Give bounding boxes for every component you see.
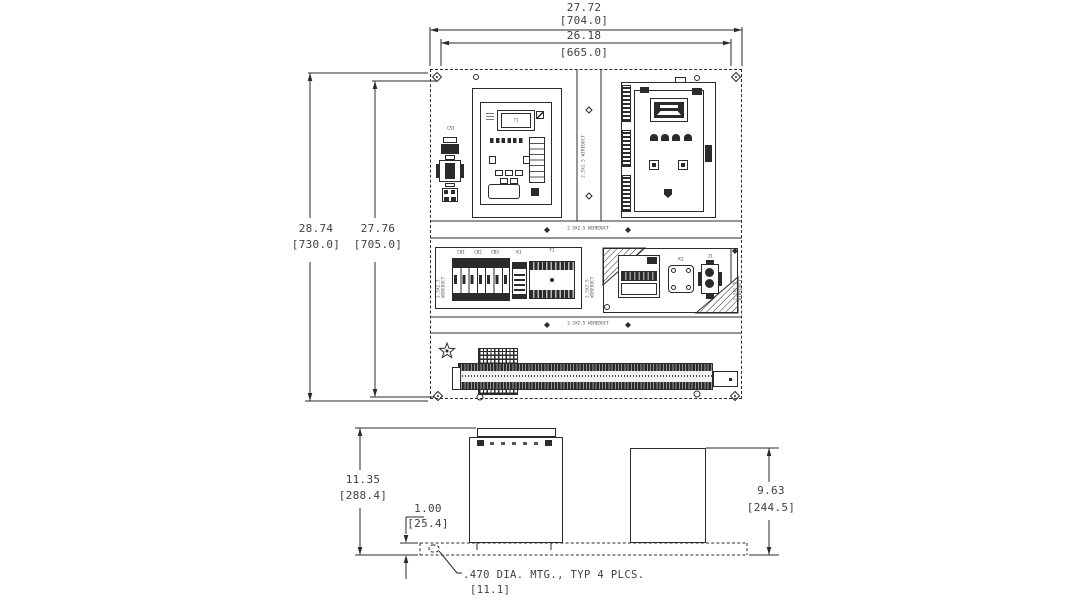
controller-key-icon <box>684 134 692 141</box>
mounting-note: .470 DIA. MTG., TYP 4 PLCS. <box>463 569 644 581</box>
relay-k2-pin <box>671 268 676 273</box>
relay-port-square <box>531 188 539 196</box>
terminal-rail-markers <box>459 375 712 377</box>
relay-led-column <box>529 137 545 183</box>
receptacle-wing-left <box>698 272 701 286</box>
wireduct-label-vertical: 2.5X2.5 WIREDUCT <box>733 266 743 301</box>
control-switch-dot <box>451 190 455 194</box>
receptacle-tab-bottom <box>706 294 714 299</box>
dim-overall-width-mm: [704.0] <box>560 14 608 27</box>
label-cb1: CB1 <box>457 250 465 255</box>
dim-mount-height-mm: [705.0] <box>354 238 402 251</box>
label-cb3: CB3 <box>491 250 499 255</box>
relay-text-block <box>486 111 494 120</box>
label-k2: K2 <box>678 257 683 262</box>
sideview-relay-body <box>469 437 563 543</box>
controller-terminal-strip <box>622 130 631 167</box>
controller-display-bar <box>657 111 681 115</box>
dim-overall-width-in: 27.72 <box>567 1 602 14</box>
control-switch-wing-left <box>436 164 440 178</box>
sideview-relay-lip <box>477 428 556 437</box>
relay-k2-pin <box>671 285 676 290</box>
controller-key-icon <box>672 134 680 141</box>
label-cs1: CS1 <box>447 126 455 131</box>
fuse-block-comb-top <box>530 262 574 270</box>
io-module-badge <box>647 257 657 264</box>
mounting-note-mm: [11.1] <box>470 584 510 596</box>
wireduct-label-vertical: 2.5X2.5 WIREDUCT <box>585 260 595 298</box>
dim-depth-right-mm: [244.5] <box>747 501 795 514</box>
receptacle-contact <box>705 268 714 277</box>
dim-base-mm: [25.4] <box>407 517 449 530</box>
wireduct-label-vertical: 2.5X2.5 WIREDUCT <box>581 134 586 177</box>
relay-k1-dots <box>514 271 525 291</box>
dim-depth-left-in: 11.35 <box>346 473 381 486</box>
dim-mount-height-in: 27.76 <box>361 222 396 235</box>
relay-button-row <box>490 138 524 143</box>
drawing-canvas: 71 <box>0 0 1080 600</box>
relay-k2-pin <box>686 268 691 273</box>
controller-terminal-strip <box>622 85 631 122</box>
receptacle-wing-right <box>719 272 722 286</box>
controller-button-left-dot <box>652 163 656 167</box>
receptacle-contact <box>705 279 714 288</box>
controller-button-right-dot <box>681 163 685 167</box>
io-module-lower <box>621 283 657 295</box>
control-switch-neck2 <box>445 183 455 187</box>
control-switch-dot <box>444 190 448 194</box>
dim-depth-right-in: 9.63 <box>757 484 785 497</box>
breaker-handles <box>454 275 508 284</box>
sideview-plate-dashes <box>490 442 542 445</box>
dim-base-in: 1.00 <box>414 502 442 515</box>
fuse-block-dot <box>550 278 554 282</box>
relay-k2-pin <box>686 285 691 290</box>
terminal-rail-cap <box>452 367 461 390</box>
relay-button-left <box>489 156 496 164</box>
terminal-rail-end-dot <box>729 378 732 381</box>
label-k1: K1 <box>516 250 521 255</box>
dim-depth-left-mm: [288.4] <box>339 489 387 502</box>
sideview-screw <box>477 440 484 446</box>
control-switch-cap <box>441 144 459 154</box>
control-switch-wing-right <box>460 164 464 178</box>
wireduct-label-top: 2.5X2.5 WIREDUCT <box>567 226 609 231</box>
dim-overall-height-mm: [730.0] <box>292 238 340 251</box>
controller-display-bar <box>660 105 678 108</box>
control-switch-foot <box>451 197 456 201</box>
controller-terminal-strip <box>622 175 631 212</box>
terminal-rail-end <box>713 371 738 387</box>
controller-key-icon <box>661 134 669 141</box>
control-switch-top <box>443 137 457 143</box>
dim-mount-width-mm: [665.0] <box>560 46 608 59</box>
label-cb2: CB2 <box>474 250 482 255</box>
wireduct-label-bottom: 2.5X2.5 WIREDUCT <box>567 321 609 326</box>
dim-mount-width-in: 26.18 <box>567 29 602 42</box>
fuse-block-comb-bottom <box>530 290 574 298</box>
controller-logo <box>640 87 649 93</box>
relay-button <box>495 170 503 176</box>
relay-display-text: 71 <box>513 118 518 123</box>
controller-key-icon <box>650 134 658 141</box>
control-switch-handle <box>445 163 455 179</box>
terminal-rail-comb-top <box>459 364 712 371</box>
relay-button <box>515 170 523 176</box>
label-j1: J1 <box>707 254 712 259</box>
dim-overall-height-in: 28.74 <box>299 222 334 235</box>
relay-front-port <box>488 184 520 199</box>
relay-logo <box>536 111 544 119</box>
io-module-terminals <box>621 271 657 281</box>
terminal-rail-comb-bottom <box>459 382 712 389</box>
relay-button <box>505 170 513 176</box>
sideview-screw <box>545 440 552 446</box>
controller-side-block <box>705 145 712 162</box>
wireduct-label-vertical: 2.5X2.5 WIREDUCT <box>436 260 446 298</box>
controller-badge <box>692 88 702 95</box>
controller-top-tab <box>675 77 686 83</box>
label-f1: F1 <box>549 248 554 253</box>
control-switch-foot <box>444 197 449 201</box>
sideview-box-right <box>630 448 706 543</box>
